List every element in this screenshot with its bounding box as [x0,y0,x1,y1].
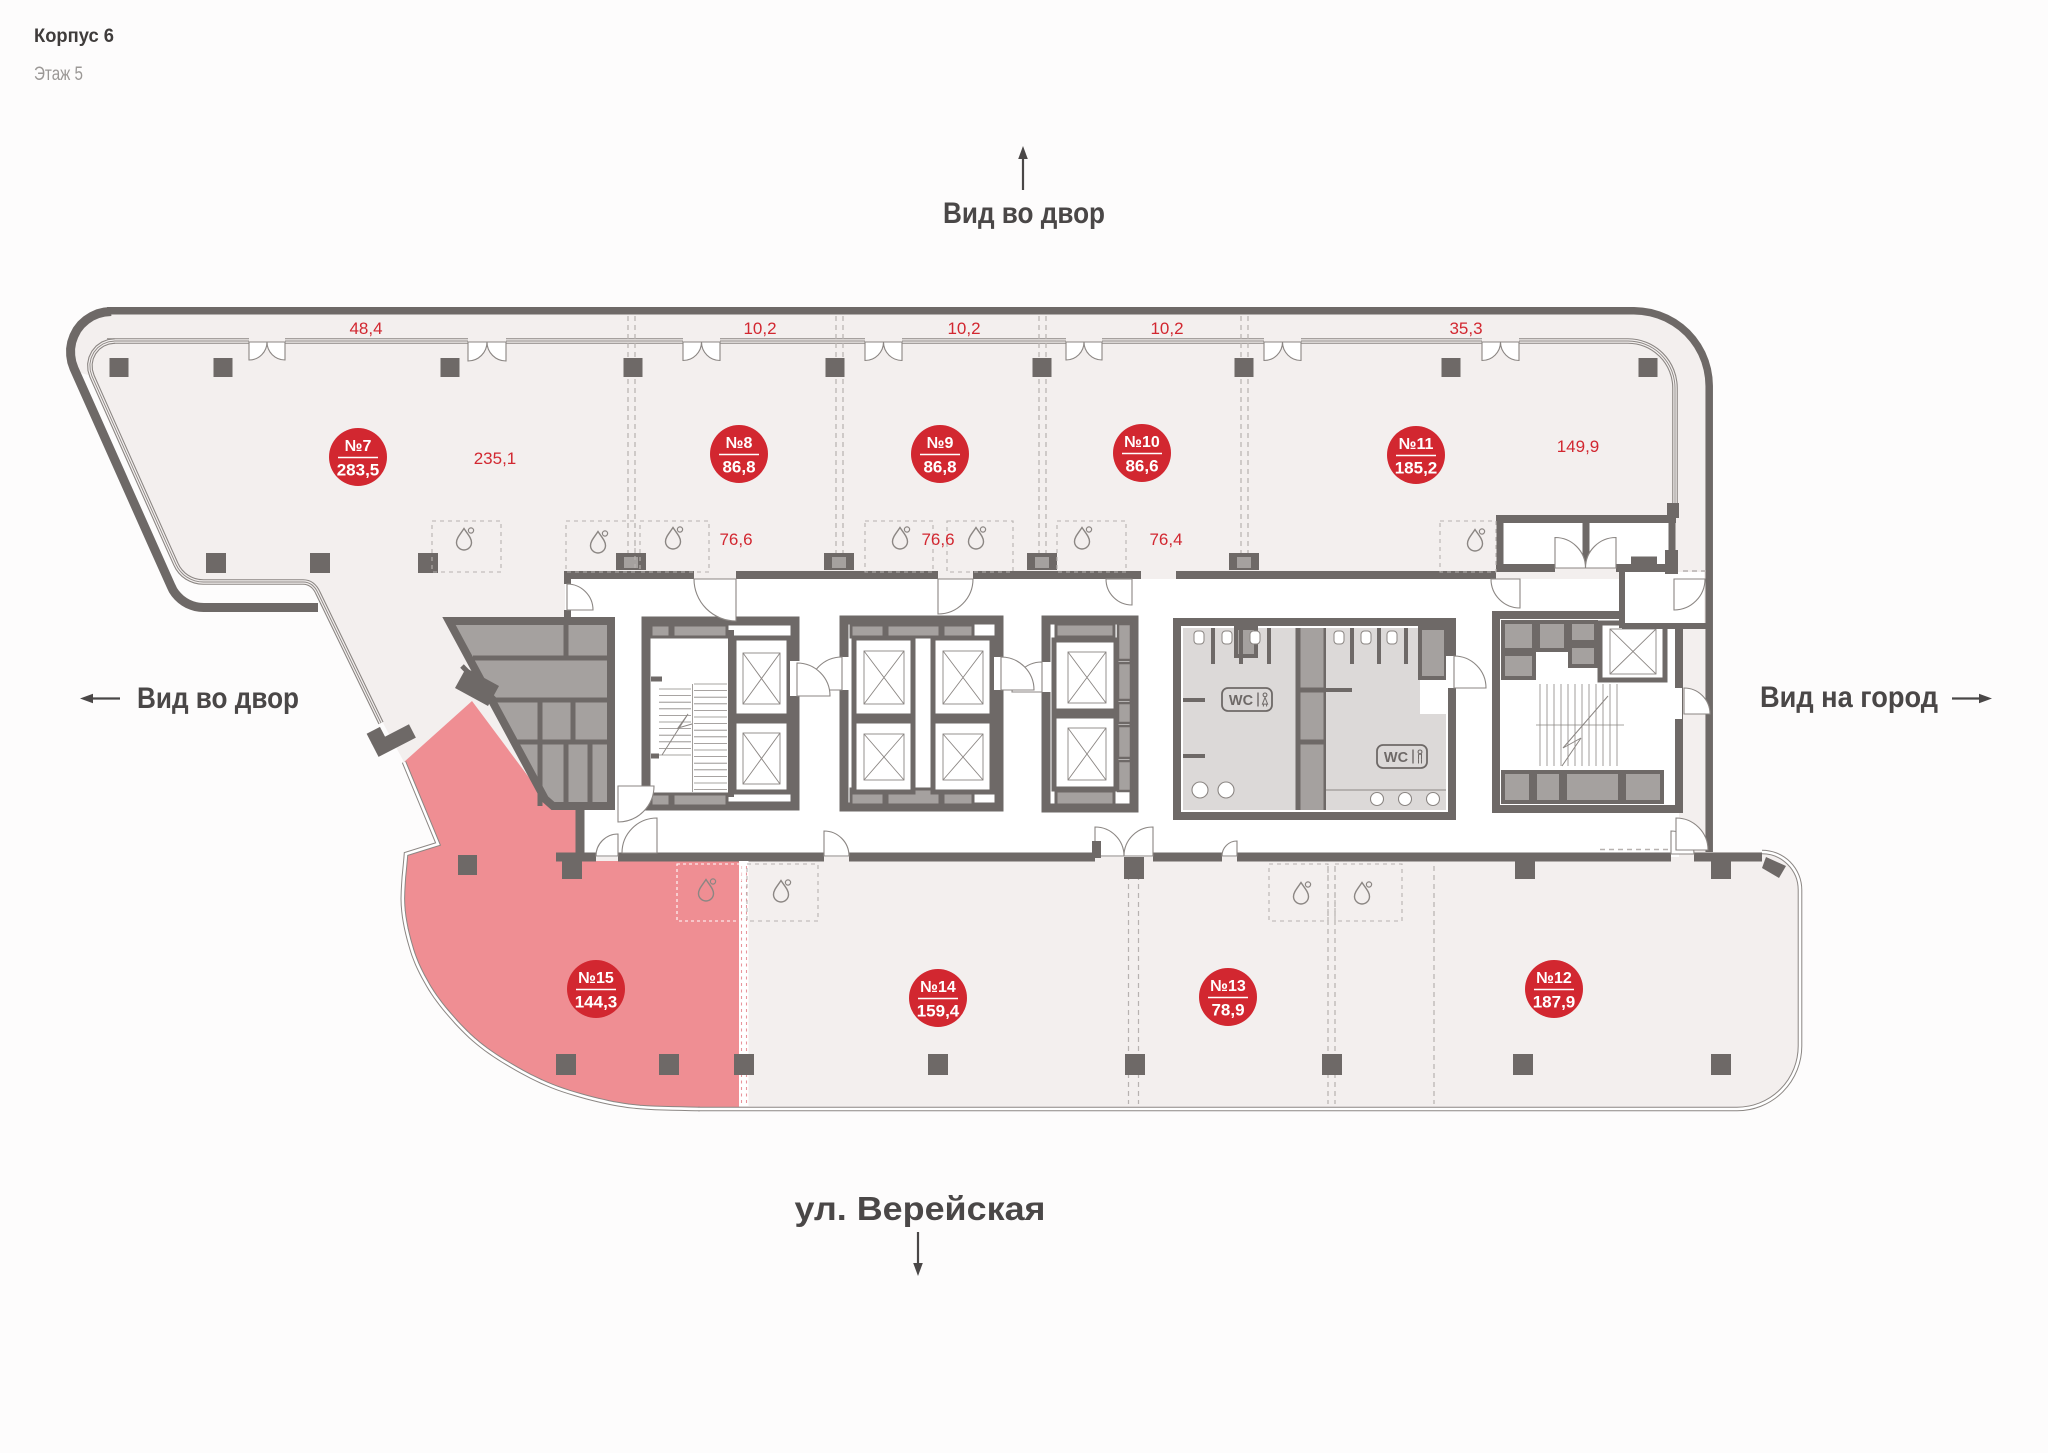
svg-text:185,2: 185,2 [1395,459,1438,478]
svg-text:283,5: 283,5 [337,461,380,480]
svg-text:№11: №11 [1399,436,1434,453]
svg-text:WC: WC [1229,693,1254,709]
svg-text:Вид на город: Вид на город [1760,681,1938,714]
svg-text:№10: №10 [1124,434,1160,451]
svg-text:10,2: 10,2 [947,319,980,338]
svg-text:№12: №12 [1536,970,1572,987]
svg-text:10,2: 10,2 [743,319,776,338]
svg-text:149,9: 149,9 [1557,437,1600,456]
svg-text:235,1: 235,1 [474,449,517,468]
svg-text:78,9: 78,9 [1211,1001,1244,1020]
svg-text:№9: №9 [927,435,954,452]
svg-text:76,4: 76,4 [1149,530,1182,549]
svg-text:ул. Верейская: ул. Верейская [795,1190,1046,1227]
svg-text:48,4: 48,4 [349,319,382,338]
svg-text:35,3: 35,3 [1449,319,1482,338]
svg-text:№14: №14 [920,979,956,996]
svg-text:76,6: 76,6 [719,530,752,549]
svg-text:Вид во двор: Вид во двор [943,197,1105,230]
svg-text:№15: №15 [578,970,614,987]
svg-text:76,6: 76,6 [921,530,954,549]
svg-text:№13: №13 [1210,978,1246,995]
svg-text:Этаж 5: Этаж 5 [34,64,83,85]
svg-text:187,9: 187,9 [1533,993,1576,1012]
svg-text:№7: №7 [345,438,372,455]
svg-text:86,8: 86,8 [722,458,755,477]
svg-text:86,8: 86,8 [923,458,956,477]
svg-text:10,2: 10,2 [1150,319,1183,338]
svg-text:159,4: 159,4 [917,1002,960,1021]
svg-text:144,3: 144,3 [575,993,618,1012]
svg-text:86,6: 86,6 [1125,457,1158,476]
svg-text:№8: №8 [726,435,753,452]
svg-text:Корпус 6: Корпус 6 [34,26,114,47]
svg-text:WC: WC [1384,750,1409,766]
svg-text:Вид во двор: Вид во двор [137,682,299,715]
